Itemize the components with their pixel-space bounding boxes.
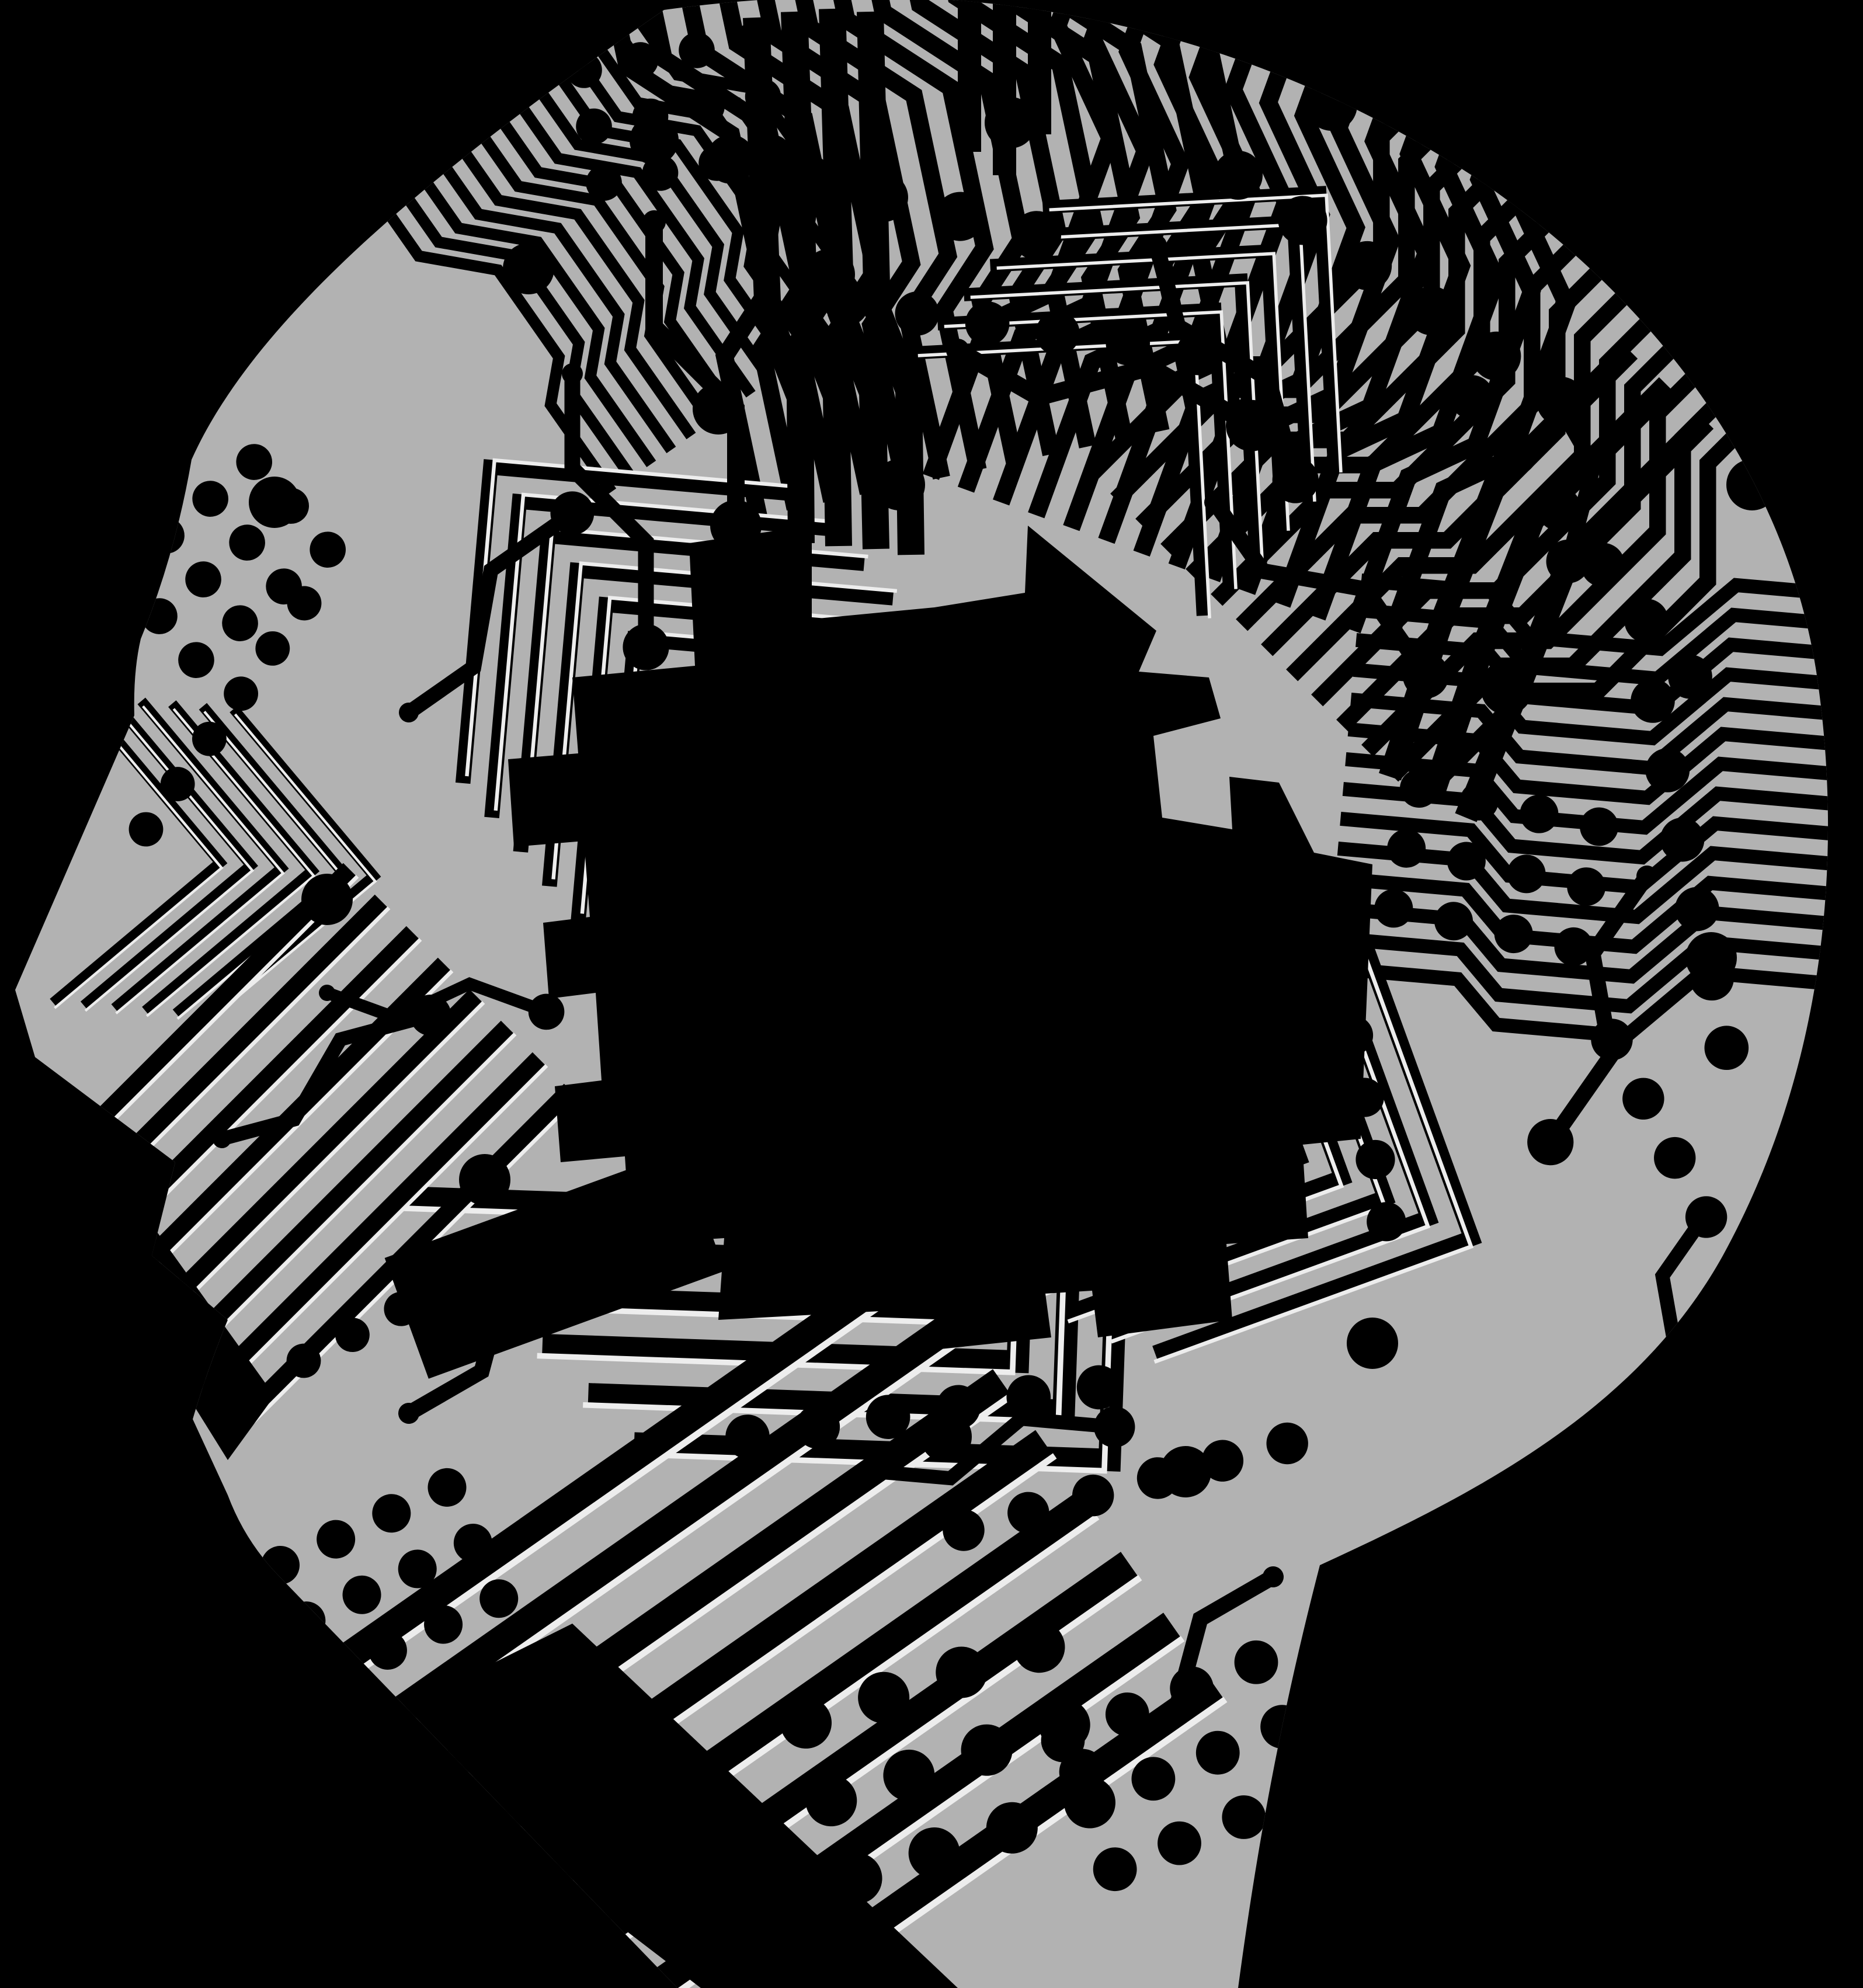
canvas bbox=[0, 0, 1863, 1988]
solder-pad bbox=[920, 1411, 972, 1462]
solder-pad bbox=[249, 477, 300, 528]
solder-pad bbox=[301, 874, 353, 925]
solder-pad bbox=[1347, 1318, 1398, 1369]
solder-pad bbox=[693, 383, 744, 435]
solder-pad bbox=[1685, 932, 1737, 983]
solder-pad bbox=[1160, 1446, 1211, 1497]
solder-pad bbox=[503, 243, 554, 294]
circuit-head-figure bbox=[0, 0, 1863, 1988]
solder-pad bbox=[459, 1154, 510, 1205]
